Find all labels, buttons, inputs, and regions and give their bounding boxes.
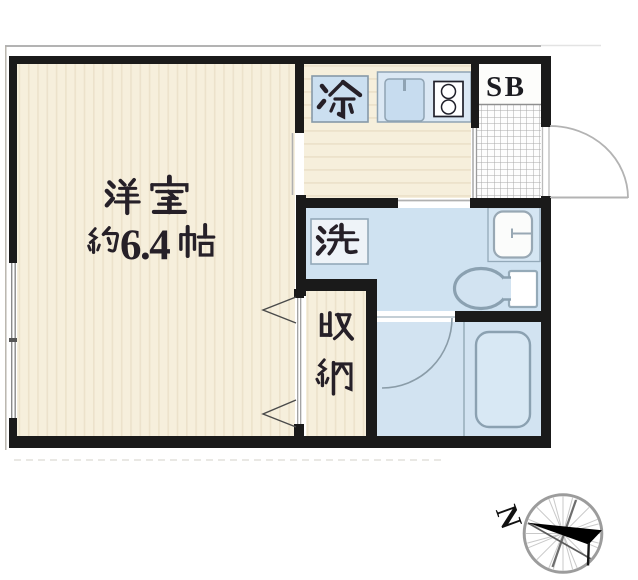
svg-text:6.4: 6.4 <box>120 222 170 269</box>
svg-text:SB: SB <box>486 71 526 103</box>
